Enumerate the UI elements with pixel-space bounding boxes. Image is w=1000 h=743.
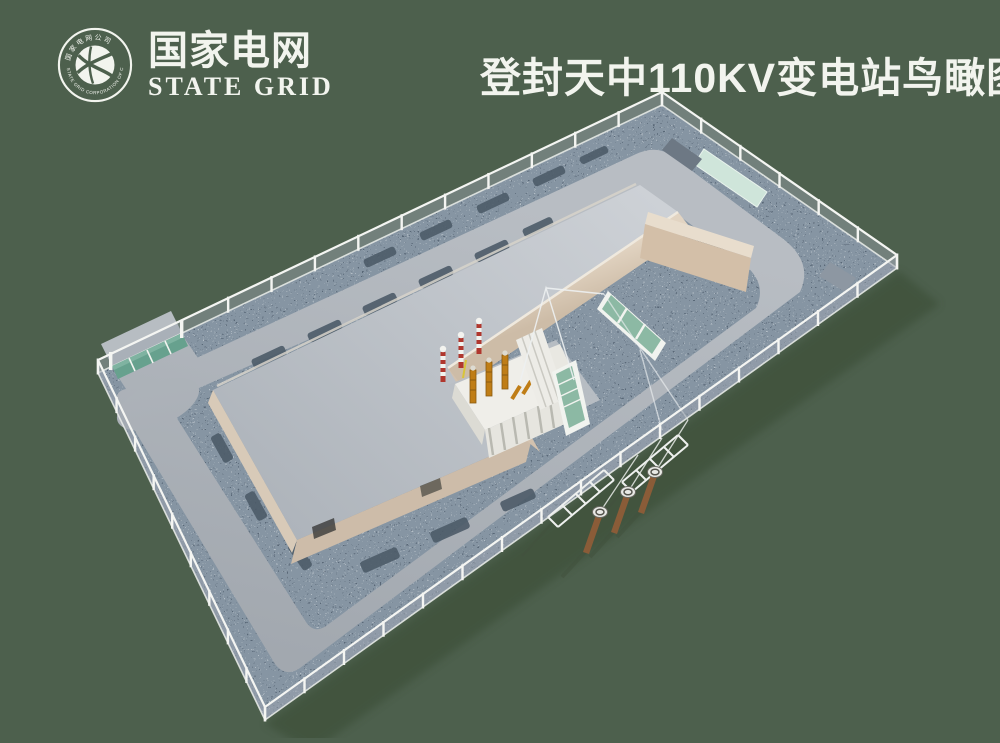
page: { "page": { "width": 1000, "height": 738… <box>0 0 1000 738</box>
header: 国家电网公司 STATE GRID CORPORATION OF CHINA 国… <box>0 0 1000 115</box>
state-grid-logo: 国家电网公司 STATE GRID CORPORATION OF CHINA 国… <box>56 26 334 104</box>
logo-text: 国家电网 STATE GRID <box>148 31 334 100</box>
page-title: 登封天中110KV变电站鸟瞰图 <box>480 44 980 104</box>
state-grid-emblem-icon: 国家电网公司 STATE GRID CORPORATION OF CHINA <box>56 26 134 104</box>
logo-name-en: STATE GRID <box>148 74 334 100</box>
logo-name-zh: 国家电网 <box>148 31 334 71</box>
